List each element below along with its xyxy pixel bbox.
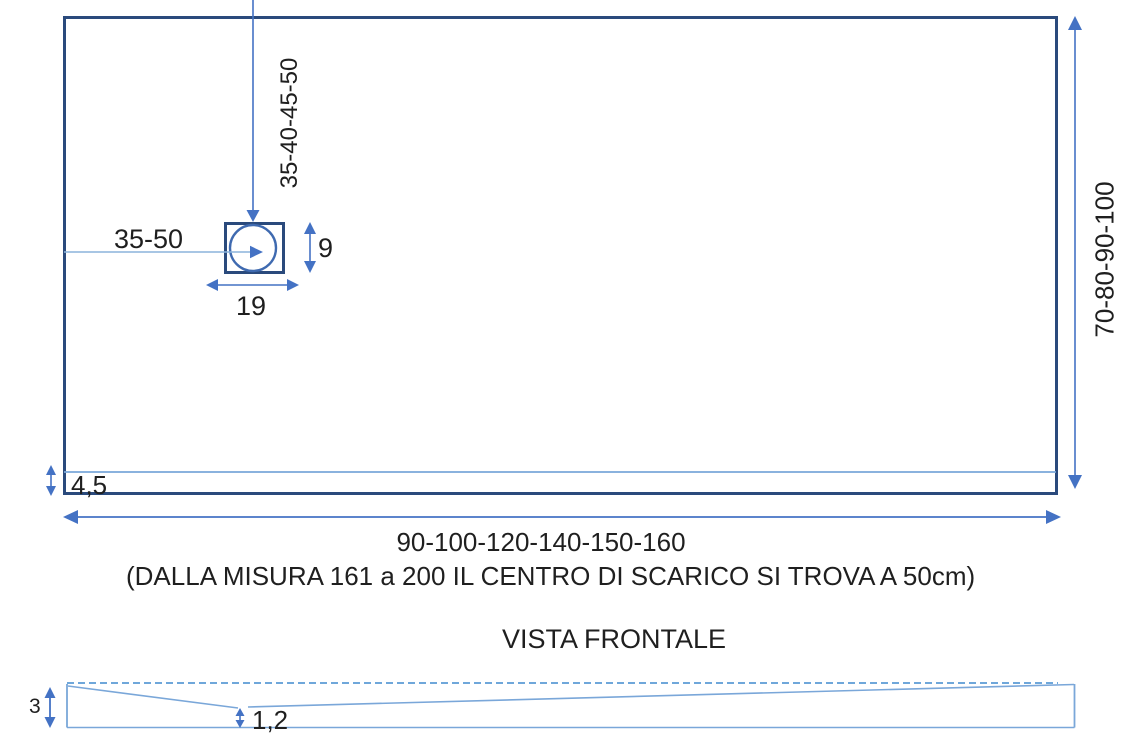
arrow-down-icon [45,717,56,728]
arrow-right-icon [287,279,299,291]
tray-depth-range-label: 70-80-90-100 [1092,175,1119,345]
profile-slope-right [248,685,1074,708]
drain-position-note: (DALLA MISURA 161 a 200 IL CENTRO DI SCA… [126,561,966,592]
shower-tray-technical-drawing: 35-40-45-50 35-50 9 19 70-80-90-100 4,5 … [0,0,1133,755]
drain-top-distance-label: 35-40-45-50 [277,48,303,198]
profile-edge-thickness-label: 3 [29,695,41,719]
arrow-up-icon [1068,16,1082,30]
drain-height-label: 9 [318,233,333,264]
arrow-down-icon [46,486,56,496]
arrow-up-icon [304,222,316,234]
tray-outline [65,18,1057,494]
arrow-right-icon [250,246,263,258]
arrow-down-icon [304,261,316,273]
profile-slope-left [68,686,238,708]
ledge-height-label: 4,5 [71,470,107,501]
arrow-right-icon [1046,510,1061,524]
arrow-left-icon [206,279,218,291]
arrow-down-icon [1068,475,1082,489]
front-view-title: VISTA FRONTALE [464,624,764,655]
arrow-up-icon [46,465,56,475]
arrow-down-icon [247,210,260,222]
arrow-up-icon [236,708,245,716]
arrow-up-icon [45,687,56,698]
drain-width-label: 19 [226,291,276,322]
tray-width-range-label: 90-100-120-140-150-160 [241,527,841,558]
profile-min-thickness-label: 1,2 [252,705,288,736]
drain-left-distance-label: 35-50 [106,224,191,255]
arrow-left-icon [63,510,78,524]
